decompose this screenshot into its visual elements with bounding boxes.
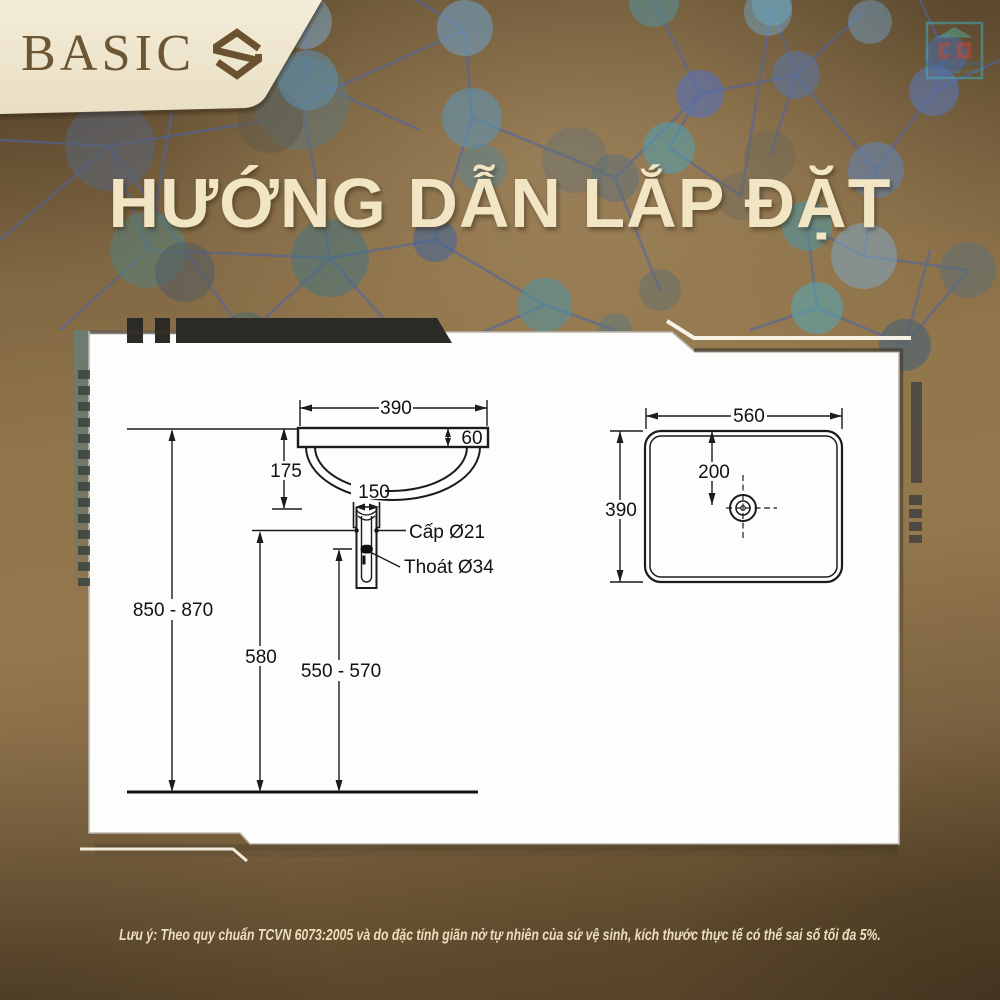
svg-text:Cấp Ø21: Cấp Ø21 <box>409 522 485 543</box>
svg-text:175: 175 <box>270 461 302 482</box>
svg-text:200: 200 <box>698 462 730 483</box>
svg-text:580: 580 <box>245 647 277 668</box>
svg-text:850 - 870: 850 - 870 <box>133 600 213 621</box>
svg-text:60: 60 <box>461 428 482 449</box>
svg-text:560: 560 <box>733 406 765 427</box>
svg-text:550 - 570: 550 - 570 <box>301 661 381 682</box>
svg-text:Thoát Ø34: Thoát Ø34 <box>404 557 494 578</box>
svg-text:390: 390 <box>380 398 412 419</box>
svg-text:390: 390 <box>605 500 637 521</box>
svg-text:150: 150 <box>358 482 390 503</box>
